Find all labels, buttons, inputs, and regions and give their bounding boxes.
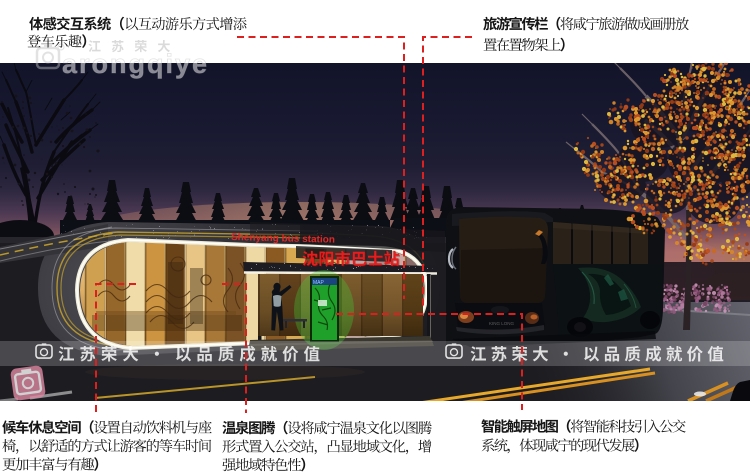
svg-text:arongqiye: arongqiye xyxy=(62,49,209,79)
svg-text:KING LONG: KING LONG xyxy=(489,321,515,326)
svg-text:MAP: MAP xyxy=(313,280,325,286)
